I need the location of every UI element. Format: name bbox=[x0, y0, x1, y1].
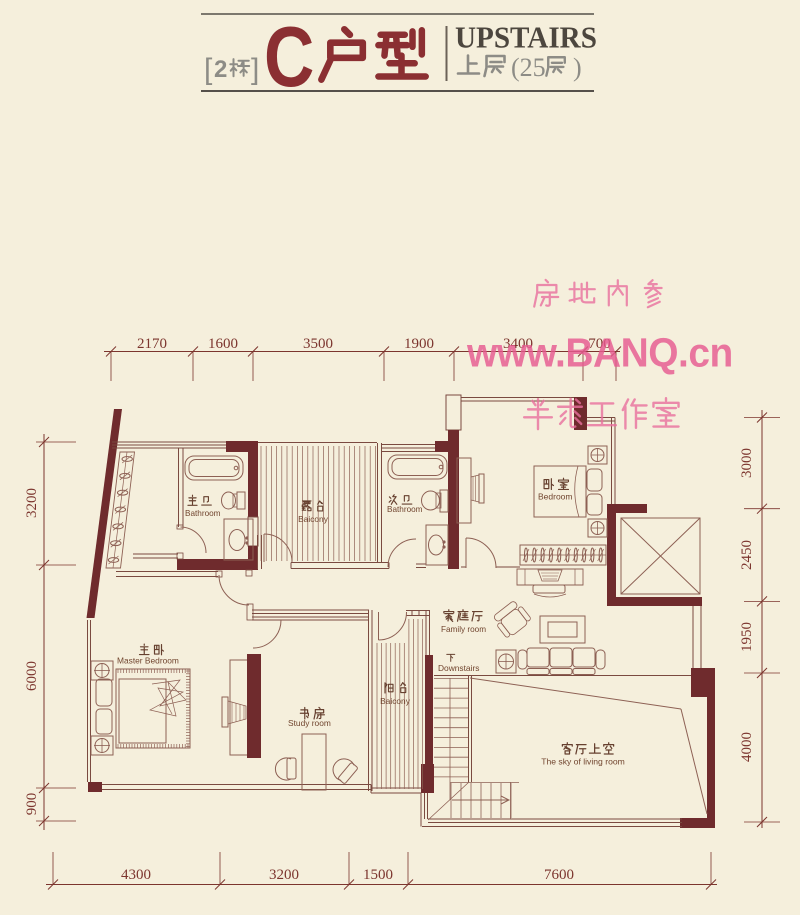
svg-text:1600: 1600 bbox=[208, 336, 238, 352]
svg-text:Bathroom: Bathroom bbox=[185, 509, 221, 518]
svg-text:[: [ bbox=[204, 53, 213, 86]
svg-text:]: ] bbox=[251, 53, 259, 86]
svg-text:3200: 3200 bbox=[269, 867, 299, 883]
svg-text:1950: 1950 bbox=[739, 622, 755, 652]
svg-text:Master Bedroom: Master Bedroom bbox=[117, 656, 179, 666]
svg-text:3200: 3200 bbox=[24, 488, 40, 518]
svg-text:Bedroom: Bedroom bbox=[538, 492, 573, 502]
svg-text:2450: 2450 bbox=[739, 540, 755, 570]
svg-text:6000: 6000 bbox=[24, 661, 40, 691]
svg-text:2: 2 bbox=[214, 56, 227, 83]
svg-text:Study room: Study room bbox=[288, 718, 331, 728]
svg-text:1900: 1900 bbox=[404, 336, 434, 352]
svg-text:7600: 7600 bbox=[544, 867, 574, 883]
svg-text:3000: 3000 bbox=[739, 448, 755, 478]
svg-text:4300: 4300 bbox=[121, 867, 151, 883]
svg-text:4000: 4000 bbox=[739, 732, 755, 762]
svg-text:Downstairs: Downstairs bbox=[438, 663, 479, 673]
svg-text:UPSTAIRS: UPSTAIRS bbox=[455, 20, 597, 55]
svg-text:3500: 3500 bbox=[303, 336, 333, 352]
svg-text:www.BANQ.cn: www.BANQ.cn bbox=[466, 331, 733, 376]
svg-text:(25: (25 bbox=[511, 53, 546, 82]
svg-text:Bathroom: Bathroom bbox=[387, 505, 423, 514]
svg-text:2170: 2170 bbox=[137, 336, 167, 352]
svg-text:C: C bbox=[264, 11, 314, 105]
svg-text:900: 900 bbox=[24, 793, 40, 816]
svg-text:Baicony: Baicony bbox=[380, 696, 411, 706]
svg-text:Baicony: Baicony bbox=[298, 514, 329, 524]
svg-text:): ) bbox=[573, 53, 582, 82]
svg-text:1500: 1500 bbox=[363, 867, 393, 883]
svg-text:Family room: Family room bbox=[441, 625, 486, 634]
svg-text:The sky of living room: The sky of living room bbox=[541, 757, 625, 767]
